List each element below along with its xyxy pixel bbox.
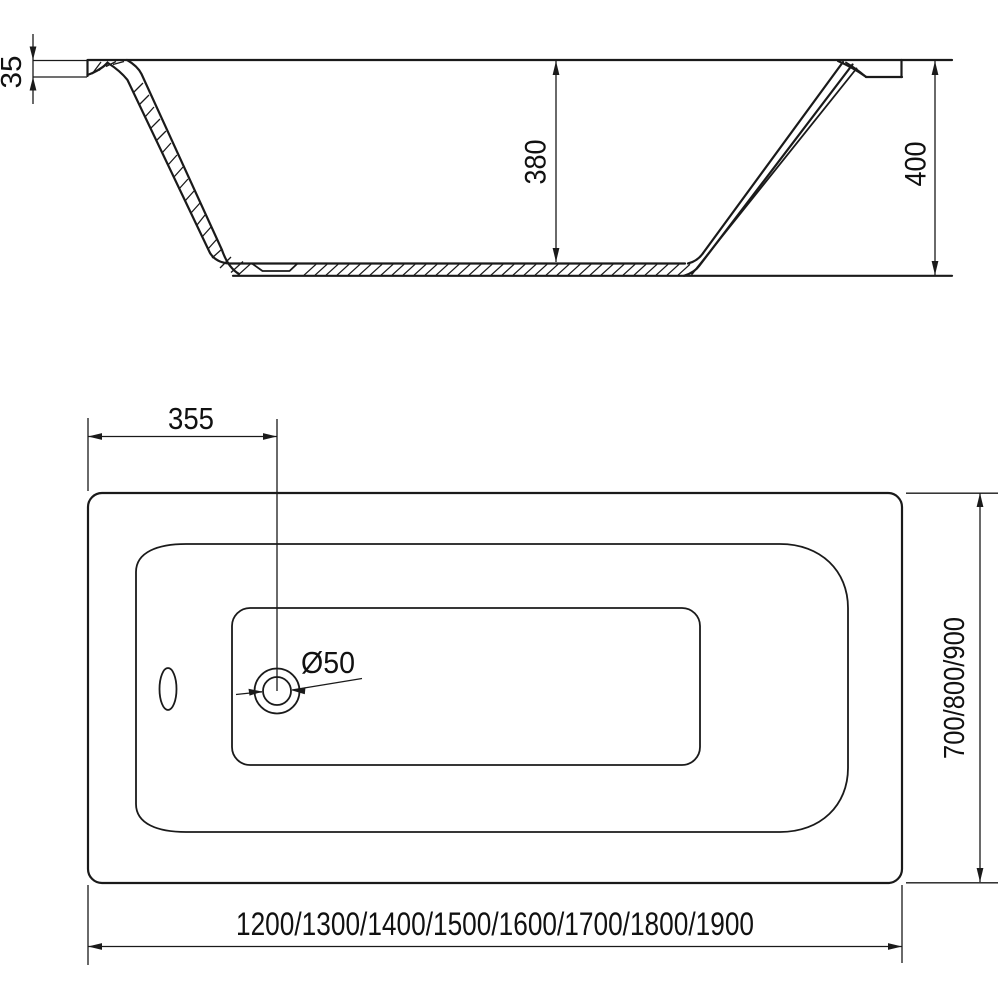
floor-hatching	[238, 264, 690, 275]
wall-hatching	[92, 62, 243, 273]
right-wall-line-a	[688, 62, 843, 264]
arrow-right-icon	[263, 433, 277, 440]
dim-drain-offset: 355	[88, 401, 277, 491]
length-options-label: 1200/1300/1400/1500/1600/1700/1800/1900	[236, 906, 754, 942]
drain-diameter-label: Ø50	[301, 645, 355, 680]
arrow-up-icon	[977, 493, 984, 507]
drawing-canvas: 35 380 400	[0, 0, 1000, 1000]
right-wall-line-c	[692, 69, 857, 275]
overall-height-label: 400	[900, 142, 933, 187]
arrow-down-icon	[932, 261, 939, 275]
arrow-right-icon	[888, 943, 902, 950]
dim-width-options: 700/800/900	[906, 493, 998, 883]
rim-thickness-label: 35	[0, 56, 28, 89]
overflow-hole	[160, 668, 177, 710]
arrow-up-icon	[553, 61, 560, 75]
drain-offset-label: 355	[168, 401, 214, 436]
arrow-down-icon	[553, 248, 560, 262]
arrow-up-icon	[932, 61, 939, 75]
inner-rim-outline	[136, 544, 848, 832]
arrow-down-icon	[977, 868, 984, 882]
dim-inner-depth: 380	[520, 61, 560, 262]
dim-overall-height: 400	[900, 61, 939, 275]
drain-recess	[252, 264, 298, 272]
plan-view: 355 Ø50 700/800/900 1200/1300/1400/1500/…	[88, 401, 998, 965]
side-section-view: 35 380 400	[0, 34, 952, 276]
dim-rim-thickness: 35	[0, 34, 87, 104]
arrow-up-icon	[30, 77, 37, 91]
inner-depth-label: 380	[520, 140, 553, 185]
bathtub-technical-drawing: 35 380 400	[0, 0, 1000, 1000]
outer-rim-outline	[88, 493, 902, 883]
arrow-left-icon	[88, 943, 102, 950]
width-options-label: 700/800/900	[939, 617, 971, 759]
floor-outline	[232, 608, 700, 765]
inner-wall-profile	[88, 63, 686, 264]
arrow-left-icon	[88, 433, 102, 440]
dim-length-options: 1200/1300/1400/1500/1600/1700/1800/1900	[88, 885, 902, 965]
arrow-down-icon	[30, 47, 37, 61]
